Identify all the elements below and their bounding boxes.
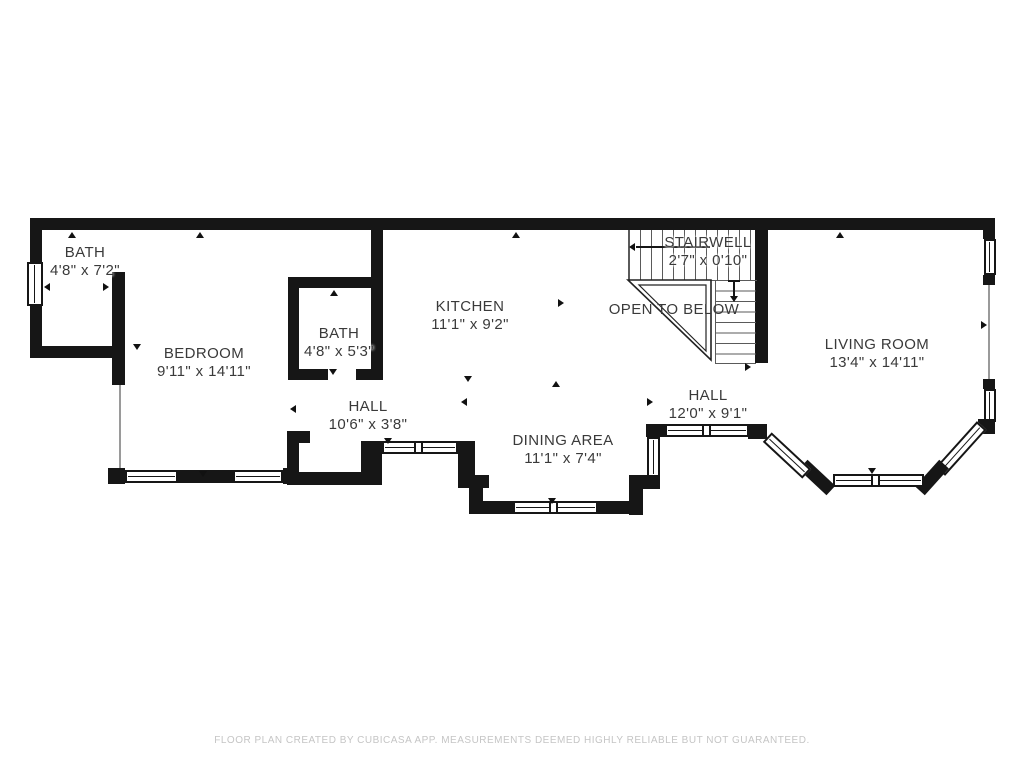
room-label-living-room: LIVING ROOM 13'4" x 14'11" <box>767 336 987 372</box>
room-label-open-to-below: OPEN TO BELOW <box>564 301 784 319</box>
window <box>233 470 283 483</box>
room-name: BATH <box>0 244 195 262</box>
window <box>125 470 178 483</box>
wall-bath2-top <box>288 277 372 288</box>
door-marker <box>552 381 560 387</box>
stair-arrow2-line <box>733 282 735 297</box>
open-to-below-triangle <box>620 272 720 367</box>
window <box>984 389 996 422</box>
room-name: STAIRWELL <box>598 234 818 252</box>
room-label-hall-1: HALL 10'6" x 3'8" <box>258 398 478 434</box>
room-label-kitchen: KITCHEN 11'1" x 9'2" <box>360 298 580 334</box>
door-marker <box>981 321 987 329</box>
wall-bath2-bottom-right <box>356 369 383 380</box>
wall-hall2-corner-right <box>748 424 767 439</box>
door-marker <box>44 283 50 291</box>
door-marker <box>464 376 472 382</box>
room-dimensions: 12'0" x 9'1" <box>598 405 818 423</box>
window <box>984 239 996 275</box>
stair-treads-side <box>715 280 756 364</box>
wall-dining-bottom-right <box>598 501 631 514</box>
door-marker <box>329 369 337 375</box>
window-bay-diagonal-left <box>763 432 811 478</box>
door-marker <box>68 232 76 238</box>
wall-bedroom-corner-bl <box>108 468 125 484</box>
thin-boundary-right <box>988 285 990 379</box>
door-marker <box>548 498 556 504</box>
door-marker <box>868 468 876 474</box>
thin-boundary-left <box>119 385 121 469</box>
window-mullion <box>871 476 880 485</box>
room-label-hall-2: HALL 12'0" x 9'1" <box>598 387 818 423</box>
floor-plan: BATH 4'8" x 7'2" BEDROOM 9'11" x 14'11" … <box>0 0 1024 768</box>
door-marker <box>103 283 109 291</box>
door-marker <box>512 232 520 238</box>
wall-alcove-right <box>361 441 382 485</box>
window-mullion <box>549 503 558 512</box>
room-name: LIVING ROOM <box>767 336 987 354</box>
room-dimensions: 13'4" x 14'11" <box>767 354 987 372</box>
room-name: OPEN TO BELOW <box>564 301 784 319</box>
room-dimensions: 9'11" x 14'11" <box>94 363 314 381</box>
room-label-bath-1: BATH 4'8" x 7'2" <box>0 244 195 280</box>
wall-lr-corner-tr <box>983 230 995 239</box>
room-dimensions: 11'1" x 9'2" <box>360 316 580 334</box>
wall-lr-right-stub1 <box>983 275 995 285</box>
room-name: DINING AREA <box>453 432 673 450</box>
window-mullion <box>702 426 711 435</box>
window-mullion <box>414 443 423 452</box>
wall-dining-step-right-v <box>629 475 643 515</box>
door-marker <box>199 471 207 477</box>
footer-disclaimer: FLOOR PLAN CREATED BY CUBICASA APP. MEAS… <box>0 735 1024 746</box>
room-dimensions: 2'7" x 0'10" <box>598 252 818 270</box>
room-name: HALL <box>598 387 818 405</box>
room-dimensions: 4'8" x 5'3" <box>229 343 449 361</box>
door-marker <box>384 438 392 444</box>
room-label-stairwell: STAIRWELL 2'7" x 0'10" <box>598 234 818 270</box>
room-name: HALL <box>258 398 478 416</box>
door-marker <box>196 232 204 238</box>
door-marker <box>836 232 844 238</box>
wall-top-exterior <box>30 218 995 230</box>
room-dimensions: 4'8" x 7'2" <box>0 262 195 280</box>
room-name: KITCHEN <box>360 298 580 316</box>
door-marker <box>330 290 338 296</box>
room-label-dining-area: DINING AREA 11'1" x 7'4" <box>453 432 673 468</box>
wall-lr-right-stub2 <box>983 379 995 389</box>
wall-dining-bottom-left <box>481 501 514 514</box>
wall-bath1-right <box>112 272 125 346</box>
room-dimensions: 10'6" x 3'8" <box>258 416 478 434</box>
room-dimensions: 11'1" x 7'4" <box>453 450 673 468</box>
door-marker <box>745 363 751 371</box>
